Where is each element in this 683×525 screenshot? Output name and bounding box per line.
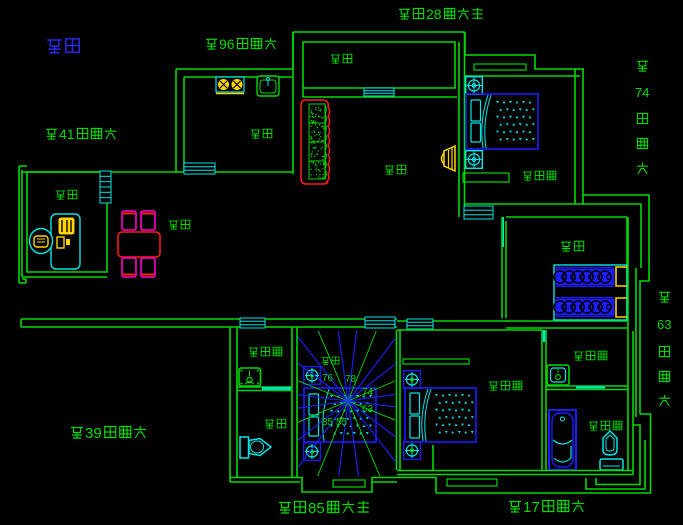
svg-text:74: 74 xyxy=(635,85,649,100)
svg-text:85: 85 xyxy=(322,417,334,428)
svg-text:63: 63 xyxy=(362,404,374,415)
svg-text:41: 41 xyxy=(59,126,75,142)
svg-text:55: 55 xyxy=(336,417,348,428)
svg-text:74: 74 xyxy=(362,387,374,398)
svg-text:17: 17 xyxy=(523,499,540,516)
svg-text:28: 28 xyxy=(426,6,442,22)
svg-text:85: 85 xyxy=(308,500,325,517)
svg-text:39: 39 xyxy=(85,425,102,442)
svg-text:76: 76 xyxy=(322,373,334,384)
svg-text:96: 96 xyxy=(219,36,235,52)
svg-text:78: 78 xyxy=(345,374,357,385)
svg-text:63: 63 xyxy=(657,317,671,332)
